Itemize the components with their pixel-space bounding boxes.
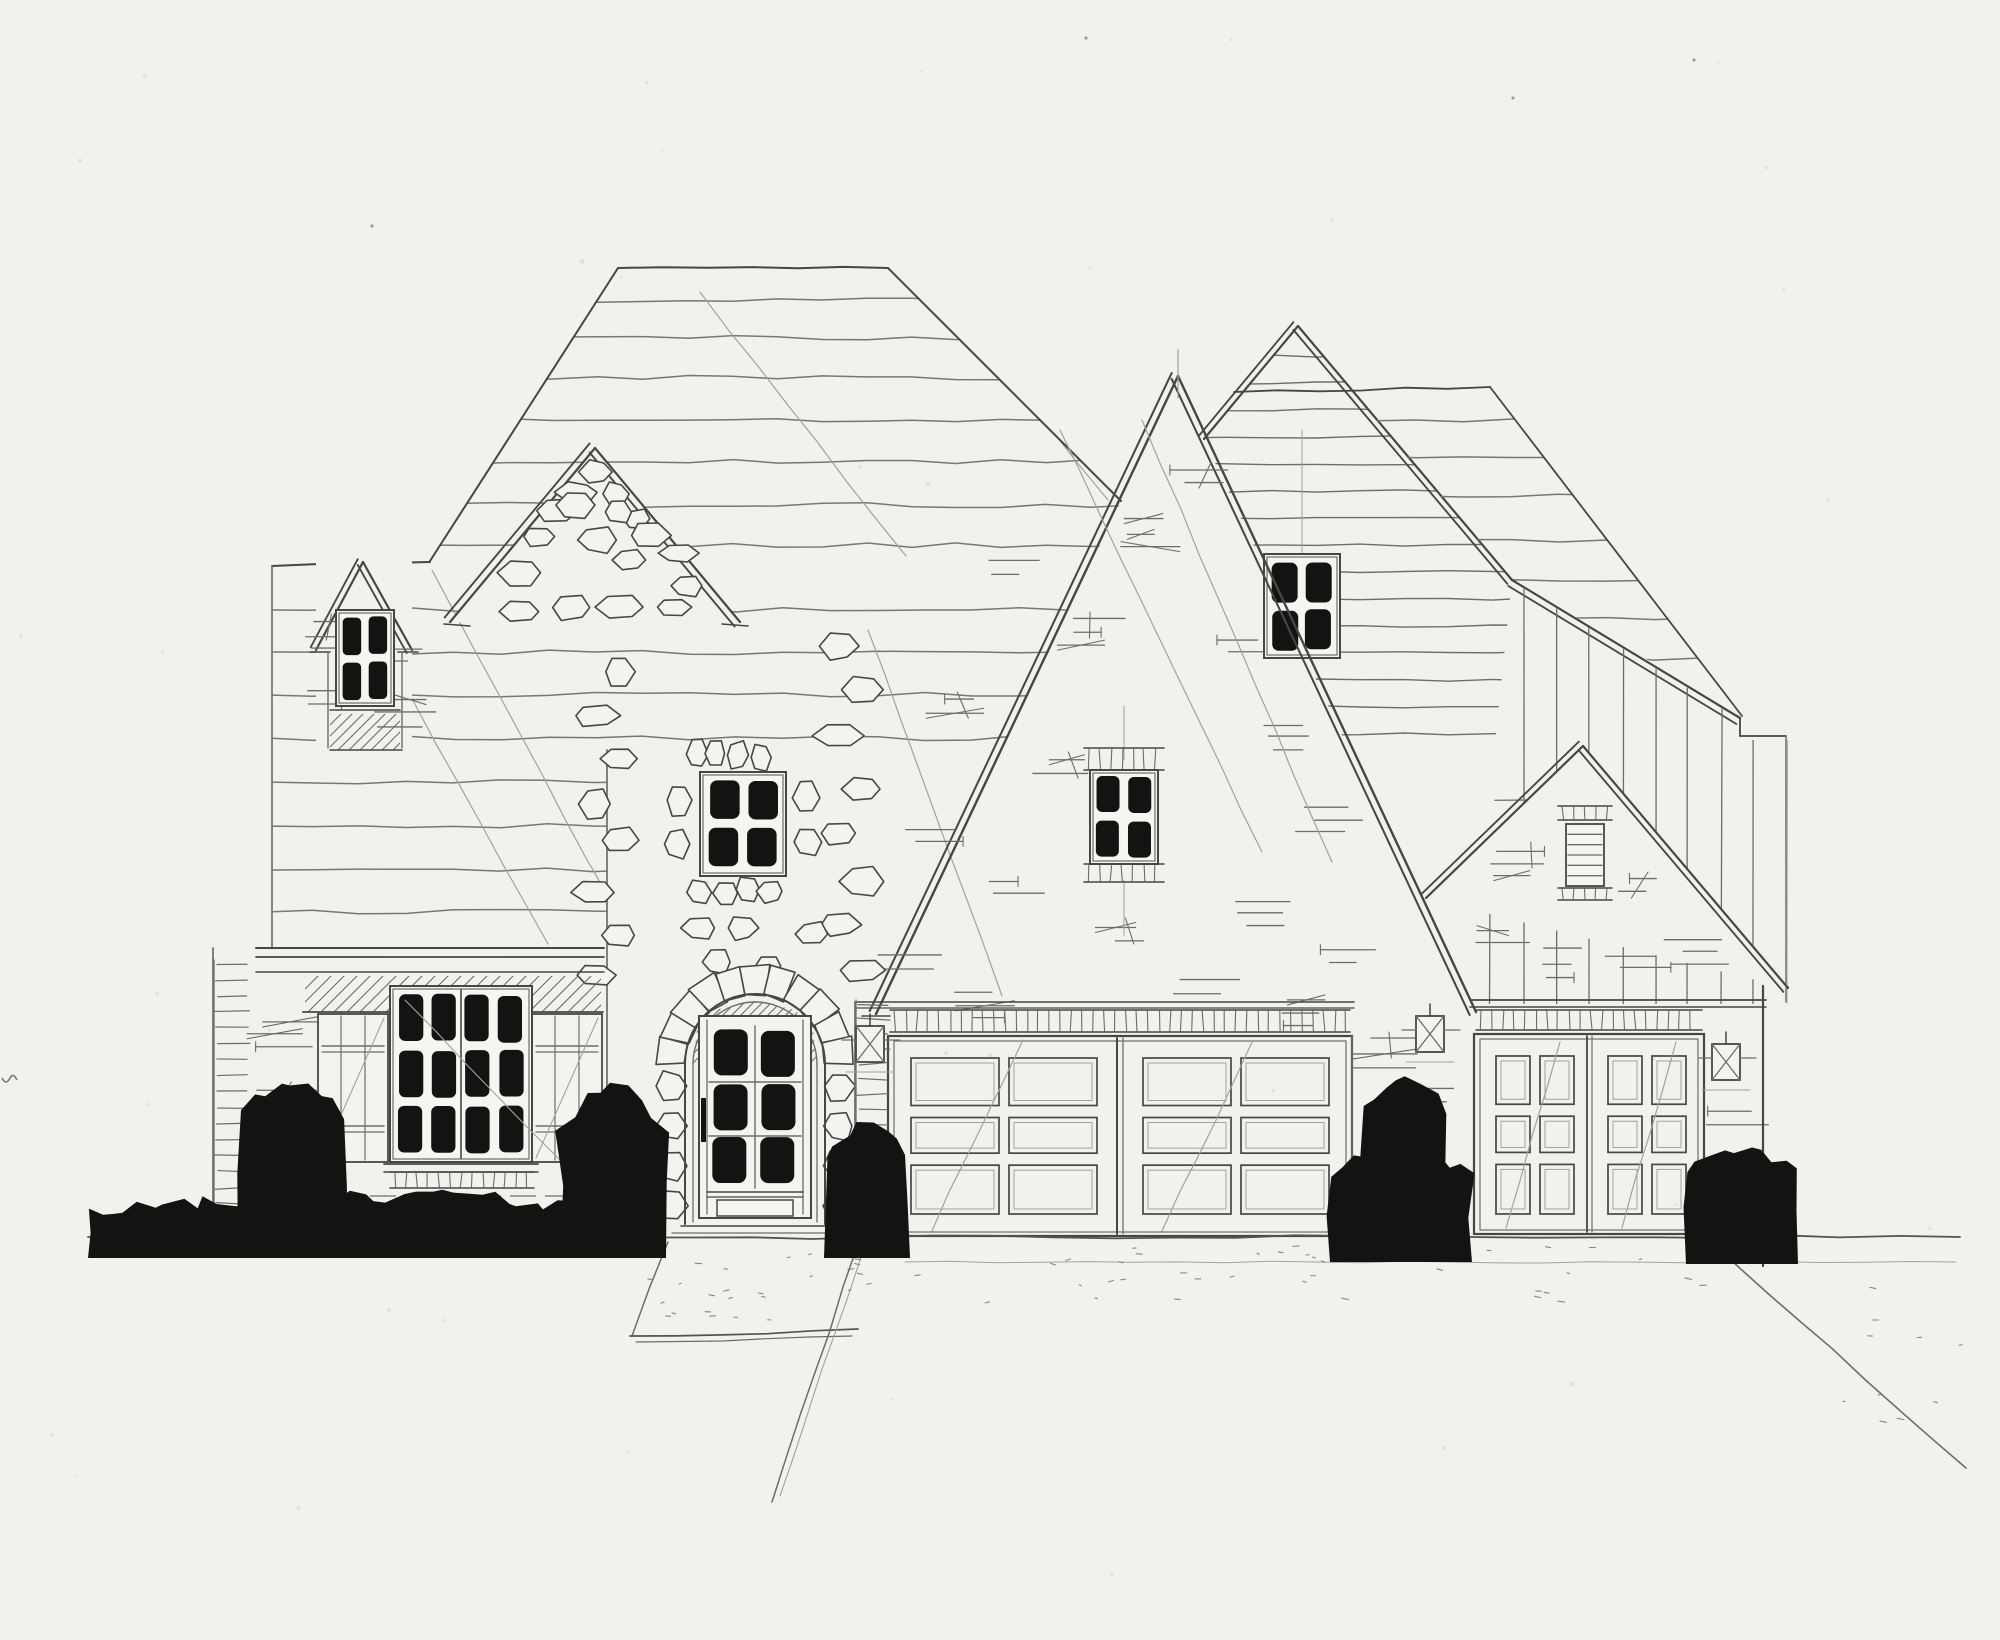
house-front-elevation-sketch	[0, 0, 2000, 1640]
pencil-circle	[944, 1051, 948, 1055]
window-pane	[343, 663, 362, 701]
window-pane	[399, 994, 423, 1041]
window-pane	[432, 994, 456, 1041]
pencil-circle	[1088, 266, 1091, 269]
pencil-circle	[1442, 1446, 1446, 1450]
pencil-line	[758, 1293, 762, 1294]
pencil-circle	[920, 70, 923, 73]
pencil-line	[710, 1316, 716, 1317]
window-pane	[464, 995, 488, 1042]
paper-speck	[1084, 36, 1087, 39]
pencil-circle	[988, 1053, 992, 1057]
pencil-line	[214, 1011, 249, 1012]
window-pane	[748, 781, 778, 820]
pencil-circle	[387, 1308, 391, 1312]
pencil-line	[1246, 1011, 1247, 1031]
pencil-line	[1573, 889, 1574, 899]
pencil-line	[915, 1275, 921, 1276]
pencil-line	[679, 1283, 681, 1284]
pencil-line	[695, 1263, 702, 1264]
pencil-line	[1088, 749, 1089, 769]
pencil-circle	[620, 276, 622, 278]
pencil-line	[994, 1011, 995, 1031]
window-pane	[1128, 822, 1151, 858]
pencil-circle	[1928, 1227, 1931, 1230]
pencil-line	[395, 1173, 396, 1187]
door-pane	[761, 1084, 795, 1130]
pencil-circle	[78, 158, 82, 162]
window-pane	[1272, 611, 1298, 651]
pencil-circle	[580, 259, 585, 264]
pencil-line	[1147, 1011, 1148, 1031]
pencil-circle	[926, 482, 930, 486]
door-pane	[712, 1137, 746, 1183]
window-pane	[1096, 821, 1119, 857]
pencil-line	[1657, 1011, 1658, 1029]
bush-silhouette	[1359, 1076, 1446, 1262]
window-pane	[499, 1106, 523, 1153]
paper-speck	[370, 224, 373, 227]
pencil-circle	[1330, 218, 1333, 221]
pencil-circle	[1765, 166, 1769, 170]
pencil-line	[483, 1173, 484, 1187]
pencil-circle	[858, 465, 862, 469]
window-pane	[432, 1051, 456, 1098]
pencil-line	[1639, 1259, 1641, 1260]
pencil-circle	[161, 651, 164, 654]
window-pane	[369, 661, 388, 699]
window-pane	[369, 616, 388, 654]
pencil-circle	[1271, 1089, 1275, 1093]
gable-louver-vent	[1558, 806, 1612, 900]
pencil-circle	[1230, 38, 1234, 42]
door-pane	[714, 1084, 748, 1130]
pencil-circle	[296, 1506, 300, 1510]
pencil-line	[1278, 1252, 1283, 1253]
pencil-circle	[626, 1451, 629, 1454]
pencil-circle	[1110, 1573, 1114, 1577]
pencil-circle	[645, 81, 648, 84]
pencil-line	[1136, 1254, 1142, 1255]
pencil-circle	[2, 1259, 4, 1261]
pencil-line	[1569, 1011, 1570, 1029]
pencil-line	[1959, 1345, 1962, 1346]
paper-background	[0, 0, 2000, 1640]
bush-silhouette	[1684, 1148, 1799, 1265]
window-pane	[1128, 777, 1151, 813]
stone-block	[602, 925, 635, 946]
pencil-circle	[155, 991, 159, 995]
window-pane	[399, 1051, 423, 1098]
stone-block	[821, 824, 855, 845]
window-pane	[431, 1106, 455, 1153]
pencil-line	[1293, 1246, 1299, 1247]
pencil-line	[471, 1173, 472, 1187]
pencil-circle	[143, 74, 148, 79]
pencil-line	[1645, 1011, 1646, 1029]
pencil-line	[1313, 1011, 1314, 1031]
pencil-line	[1585, 889, 1586, 899]
pencil-line	[216, 980, 248, 981]
pencil-line	[1100, 865, 1101, 881]
pencil-line	[1313, 1257, 1316, 1258]
pencil-circle	[268, 1028, 272, 1032]
pencil-line	[1144, 865, 1145, 881]
stone-block	[736, 877, 759, 901]
pencil-circle	[1827, 499, 1831, 503]
pencil-line	[1121, 1279, 1126, 1280]
window-pane	[498, 996, 522, 1043]
pencil-line	[809, 1254, 812, 1255]
pencil-line	[938, 1011, 939, 1031]
pencil-circle	[19, 634, 23, 638]
window-pane	[343, 618, 362, 656]
window-pane	[747, 828, 777, 867]
window-pane	[499, 1050, 523, 1097]
pencil-line	[858, 1005, 888, 1006]
sketch-page	[0, 0, 2000, 1640]
pencil-circle	[1570, 1382, 1574, 1386]
door-leaf	[699, 1016, 811, 1218]
pencil-line	[648, 1279, 652, 1280]
pencil-line	[787, 1257, 790, 1258]
paper-speck	[1511, 96, 1514, 99]
pencil-line	[1679, 1011, 1680, 1029]
pencil-line	[1192, 1011, 1193, 1031]
paper-speck	[1692, 58, 1695, 61]
window-pane	[1306, 562, 1332, 602]
pencil-circle	[1674, 1203, 1677, 1206]
pencil-line	[848, 1269, 854, 1270]
pencil-circle	[661, 149, 663, 151]
pencil-circle	[891, 1398, 894, 1401]
pencil-line	[1335, 1011, 1336, 1031]
door-pane	[714, 1029, 748, 1075]
pencil-line	[762, 1296, 766, 1297]
pencil-line	[906, 1011, 907, 1031]
pencil-line	[1606, 889, 1607, 899]
pencil-circle	[442, 1319, 446, 1323]
window-pane	[398, 1106, 422, 1153]
door-pane	[760, 1137, 794, 1183]
pencil-line	[1089, 612, 1090, 638]
window-pane	[465, 1107, 489, 1154]
pencil-line	[1567, 1273, 1570, 1274]
pencil-circle	[74, 1474, 77, 1477]
pencil-line	[1584, 807, 1585, 819]
pencil-line	[860, 1109, 887, 1110]
window-pane	[709, 828, 739, 867]
pencil-circle	[1717, 61, 1719, 63]
window-pane	[465, 1050, 489, 1097]
pencil-circle	[1782, 288, 1785, 291]
pencil-line	[1095, 1298, 1098, 1299]
window-pane	[1305, 609, 1331, 649]
pencil-line	[1668, 1011, 1669, 1029]
pencil-line	[810, 1276, 812, 1277]
door-pane	[761, 1031, 795, 1077]
pencil-line	[1235, 1011, 1236, 1031]
pencil-line	[1480, 1011, 1481, 1029]
window-pane	[1097, 776, 1120, 812]
window-pane	[710, 780, 740, 819]
pencil-circle	[50, 1433, 53, 1436]
bush-silhouette	[237, 1084, 348, 1259]
pencil-circle	[147, 1103, 151, 1107]
pencil-line	[855, 1259, 861, 1260]
pencil-line	[1302, 1011, 1303, 1031]
door-handle	[701, 1098, 706, 1142]
